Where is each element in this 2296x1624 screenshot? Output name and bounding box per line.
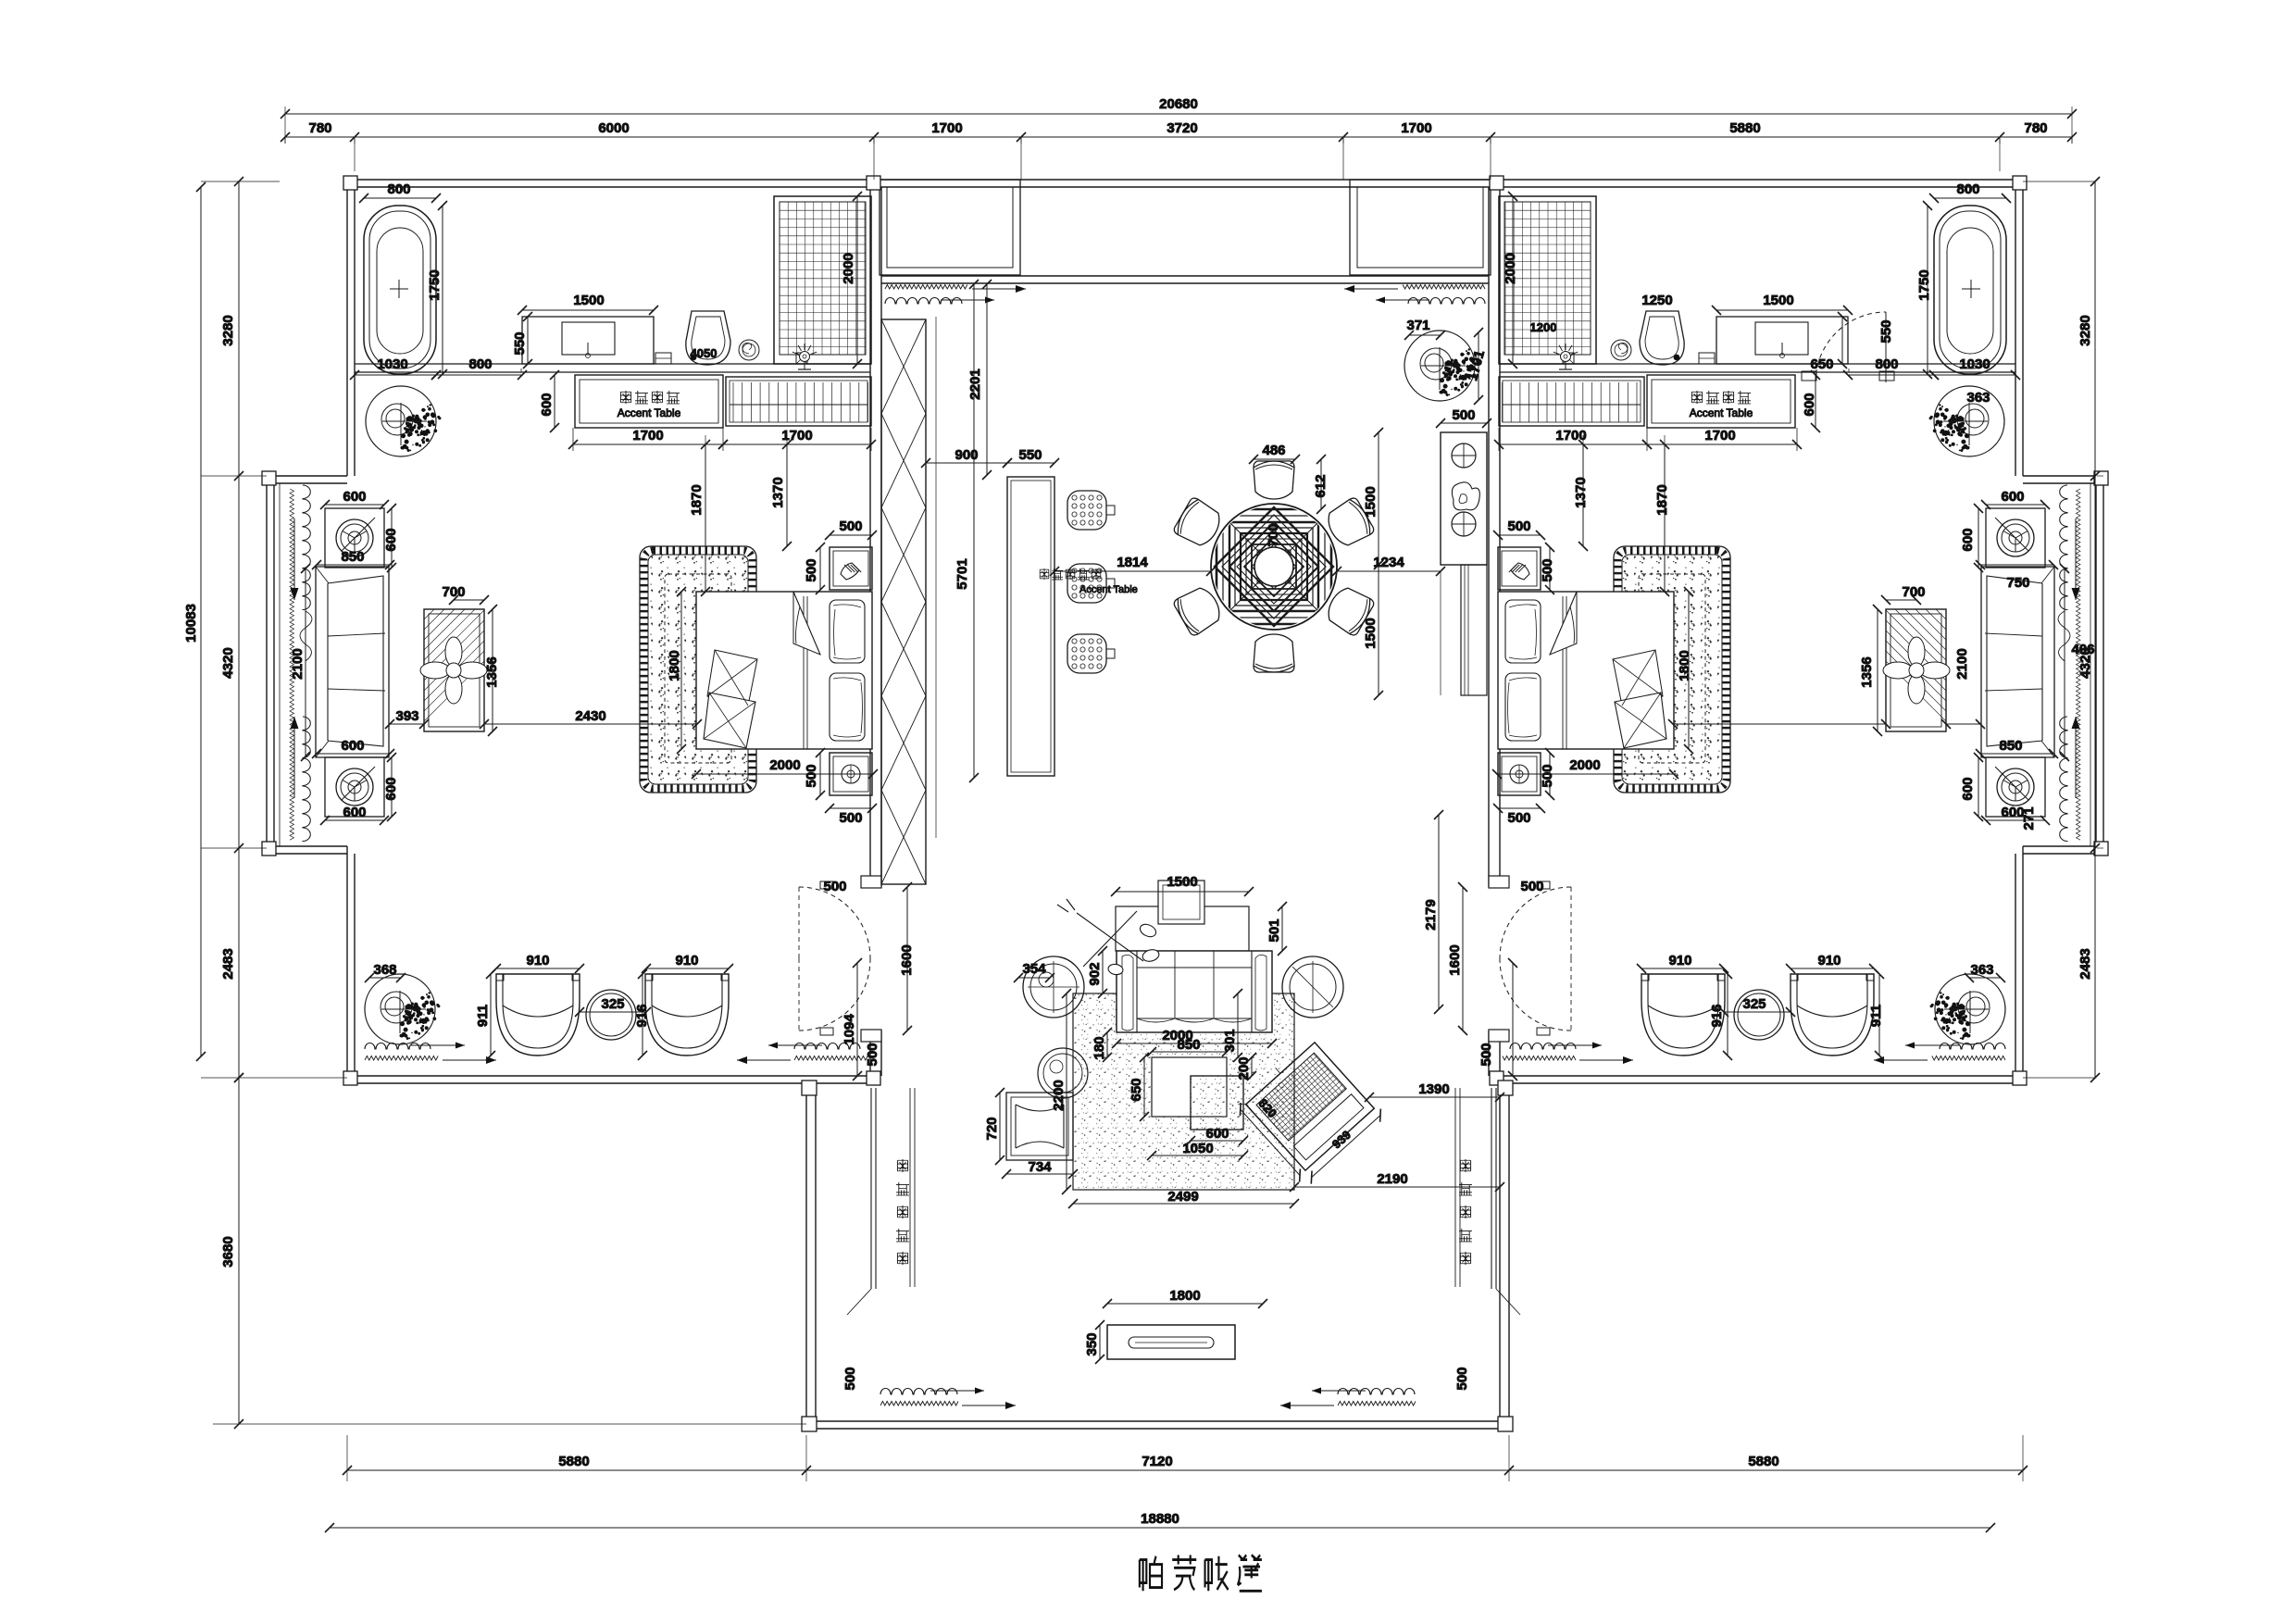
- svg-text:550: 550: [1878, 319, 1894, 343]
- svg-text:2483: 2483: [220, 948, 236, 979]
- svg-text:2499: 2499: [1167, 1189, 1198, 1205]
- svg-text:354: 354: [1022, 961, 1046, 977]
- svg-text:500: 500: [1507, 810, 1530, 826]
- svg-text:5880: 5880: [1729, 120, 1760, 136]
- svg-text:Accent Table: Accent Table: [1079, 584, 1138, 595]
- svg-text:406: 406: [2071, 642, 2094, 657]
- svg-text:780: 780: [308, 120, 331, 136]
- svg-text:902: 902: [1087, 962, 1103, 985]
- svg-text:1500: 1500: [1363, 486, 1379, 517]
- svg-text:2483: 2483: [2078, 948, 2093, 979]
- svg-text:600: 600: [2001, 489, 2024, 505]
- svg-text:1870: 1870: [689, 484, 705, 515]
- svg-text:1700: 1700: [632, 428, 663, 443]
- svg-text:910: 910: [675, 953, 698, 968]
- svg-text:3280: 3280: [2078, 315, 2093, 345]
- svg-text:6000: 6000: [598, 120, 629, 136]
- svg-text:910: 910: [526, 953, 549, 968]
- svg-text:1800: 1800: [667, 650, 682, 681]
- svg-text:2179: 2179: [1423, 899, 1439, 930]
- svg-text:780: 780: [2024, 120, 2047, 136]
- svg-text:500: 500: [865, 1043, 880, 1066]
- svg-text:1370: 1370: [770, 477, 786, 507]
- svg-text:850: 850: [1177, 1037, 1200, 1053]
- svg-text:1234: 1234: [1373, 555, 1404, 570]
- svg-text:500: 500: [839, 518, 862, 534]
- svg-text:1700: 1700: [1555, 428, 1586, 443]
- svg-text:1500: 1500: [1763, 293, 1793, 308]
- svg-text:301: 301: [1222, 1029, 1238, 1052]
- svg-text:600: 600: [1960, 528, 1976, 551]
- svg-text:600: 600: [1205, 1126, 1229, 1142]
- svg-text:Accent Table: Accent Table: [618, 406, 681, 419]
- svg-text:1094: 1094: [842, 1014, 857, 1045]
- svg-text:1600: 1600: [1447, 944, 1463, 975]
- svg-text:501: 501: [1267, 918, 1282, 942]
- svg-text:800: 800: [387, 181, 410, 197]
- svg-text:1356: 1356: [1859, 656, 1875, 687]
- svg-text:910: 910: [1668, 953, 1691, 968]
- svg-text:1600: 1600: [899, 944, 915, 975]
- svg-text:325: 325: [1742, 996, 1766, 1012]
- svg-text:Accent Table: Accent Table: [1690, 406, 1753, 419]
- svg-text:1750: 1750: [427, 269, 443, 300]
- svg-text:1700: 1700: [781, 428, 812, 443]
- svg-text:2200: 2200: [1051, 1080, 1067, 1110]
- svg-text:916: 916: [1709, 1004, 1725, 1027]
- svg-text:500: 500: [1540, 764, 1555, 787]
- svg-text:2100: 2100: [290, 648, 306, 679]
- svg-text:600: 600: [539, 393, 555, 416]
- svg-text:500: 500: [839, 810, 862, 826]
- svg-text:1390: 1390: [1418, 1081, 1449, 1097]
- svg-text:600: 600: [343, 489, 366, 505]
- svg-text:1250: 1250: [1641, 293, 1672, 308]
- svg-text:500: 500: [842, 1367, 858, 1390]
- svg-text:500: 500: [1507, 518, 1530, 534]
- svg-text:1814: 1814: [1117, 555, 1148, 570]
- svg-text:486: 486: [1262, 443, 1285, 458]
- svg-text:916: 916: [634, 1004, 650, 1027]
- svg-text:600: 600: [2001, 805, 2024, 820]
- svg-text:2190: 2190: [1377, 1171, 1407, 1187]
- svg-text:500: 500: [1454, 1367, 1470, 1390]
- svg-text:1500: 1500: [1363, 618, 1379, 648]
- svg-text:371: 371: [1406, 318, 1429, 333]
- svg-text:1800: 1800: [1677, 650, 1692, 681]
- svg-text:600: 600: [383, 777, 399, 800]
- svg-text:2201: 2201: [967, 369, 983, 399]
- svg-text:1800: 1800: [1169, 1288, 1200, 1304]
- svg-text:500: 500: [1520, 879, 1543, 894]
- svg-text:700: 700: [442, 584, 465, 600]
- svg-text:500: 500: [1452, 407, 1475, 423]
- svg-text:393: 393: [395, 708, 418, 724]
- svg-text:500: 500: [823, 879, 846, 894]
- svg-text:500: 500: [804, 764, 819, 787]
- svg-text:2000: 2000: [769, 757, 800, 773]
- svg-text:200: 200: [1236, 1056, 1252, 1080]
- svg-text:600: 600: [341, 738, 364, 754]
- svg-text:4320: 4320: [220, 647, 236, 678]
- svg-text:600: 600: [1802, 393, 1817, 416]
- svg-text:2000: 2000: [1569, 757, 1600, 773]
- svg-text:500: 500: [1479, 1043, 1494, 1066]
- svg-text:1030: 1030: [1959, 356, 1990, 372]
- svg-text:700: 700: [1266, 523, 1281, 546]
- svg-text:650: 650: [1129, 1078, 1144, 1101]
- svg-text:3280: 3280: [220, 315, 236, 345]
- svg-text:2100: 2100: [1954, 648, 1970, 679]
- svg-text:720: 720: [984, 1117, 1000, 1140]
- svg-text:910: 910: [1817, 953, 1841, 968]
- svg-text:550: 550: [512, 331, 528, 355]
- svg-text:18880: 18880: [1141, 1511, 1179, 1527]
- svg-text:180: 180: [1092, 1036, 1107, 1059]
- svg-text:850: 850: [341, 549, 364, 565]
- svg-text:600: 600: [343, 805, 366, 820]
- svg-text:10083: 10083: [183, 604, 199, 643]
- svg-text:368: 368: [373, 962, 396, 978]
- svg-text:1370: 1370: [1573, 477, 1589, 507]
- svg-text:500: 500: [804, 558, 819, 581]
- svg-text:350: 350: [1084, 1332, 1100, 1355]
- svg-text:900: 900: [955, 447, 978, 463]
- svg-text:5701: 5701: [955, 558, 970, 589]
- svg-text:1700: 1700: [1704, 428, 1735, 443]
- svg-text:7120: 7120: [1142, 1454, 1172, 1469]
- svg-text:1500: 1500: [1167, 874, 1197, 890]
- svg-text:750: 750: [2006, 575, 2029, 591]
- svg-text:1050: 1050: [1182, 1141, 1213, 1156]
- svg-text:1356: 1356: [484, 656, 500, 687]
- svg-text:3720: 3720: [1167, 120, 1197, 136]
- svg-text:1200: 1200: [1530, 320, 1557, 334]
- svg-text:550: 550: [1018, 447, 1042, 463]
- svg-text:800: 800: [1956, 181, 1979, 197]
- svg-text:5880: 5880: [1748, 1454, 1778, 1469]
- svg-text:600: 600: [1960, 777, 1976, 800]
- svg-text:325: 325: [601, 996, 624, 1012]
- svg-text:1870: 1870: [1654, 484, 1670, 515]
- svg-text:600: 600: [383, 528, 399, 551]
- svg-text:4050: 4050: [691, 346, 717, 360]
- svg-text:20680: 20680: [1159, 96, 1198, 112]
- svg-text:700: 700: [1902, 584, 1925, 600]
- svg-text:1700: 1700: [1401, 120, 1431, 136]
- svg-text:2000: 2000: [841, 253, 856, 283]
- svg-text:3680: 3680: [220, 1236, 236, 1267]
- svg-text:2430: 2430: [575, 708, 605, 724]
- svg-text:800: 800: [468, 356, 492, 372]
- svg-text:2000: 2000: [1503, 253, 1518, 283]
- svg-text:734: 734: [1028, 1159, 1052, 1175]
- svg-text:612: 612: [1313, 474, 1329, 497]
- svg-text:850: 850: [1999, 738, 2022, 754]
- svg-text:650: 650: [1810, 356, 1833, 372]
- svg-text:1700: 1700: [931, 120, 962, 136]
- svg-text:1500: 1500: [573, 293, 604, 308]
- svg-text:363: 363: [1966, 390, 1990, 406]
- svg-text:800: 800: [1875, 356, 1898, 372]
- svg-text:1750: 1750: [1916, 269, 1932, 300]
- svg-text:5880: 5880: [558, 1454, 589, 1469]
- svg-text:911: 911: [475, 1005, 491, 1027]
- svg-text:1030: 1030: [377, 356, 407, 372]
- svg-text:500: 500: [1540, 558, 1555, 581]
- svg-text:911: 911: [1868, 1005, 1884, 1027]
- svg-text:363: 363: [1970, 962, 1993, 978]
